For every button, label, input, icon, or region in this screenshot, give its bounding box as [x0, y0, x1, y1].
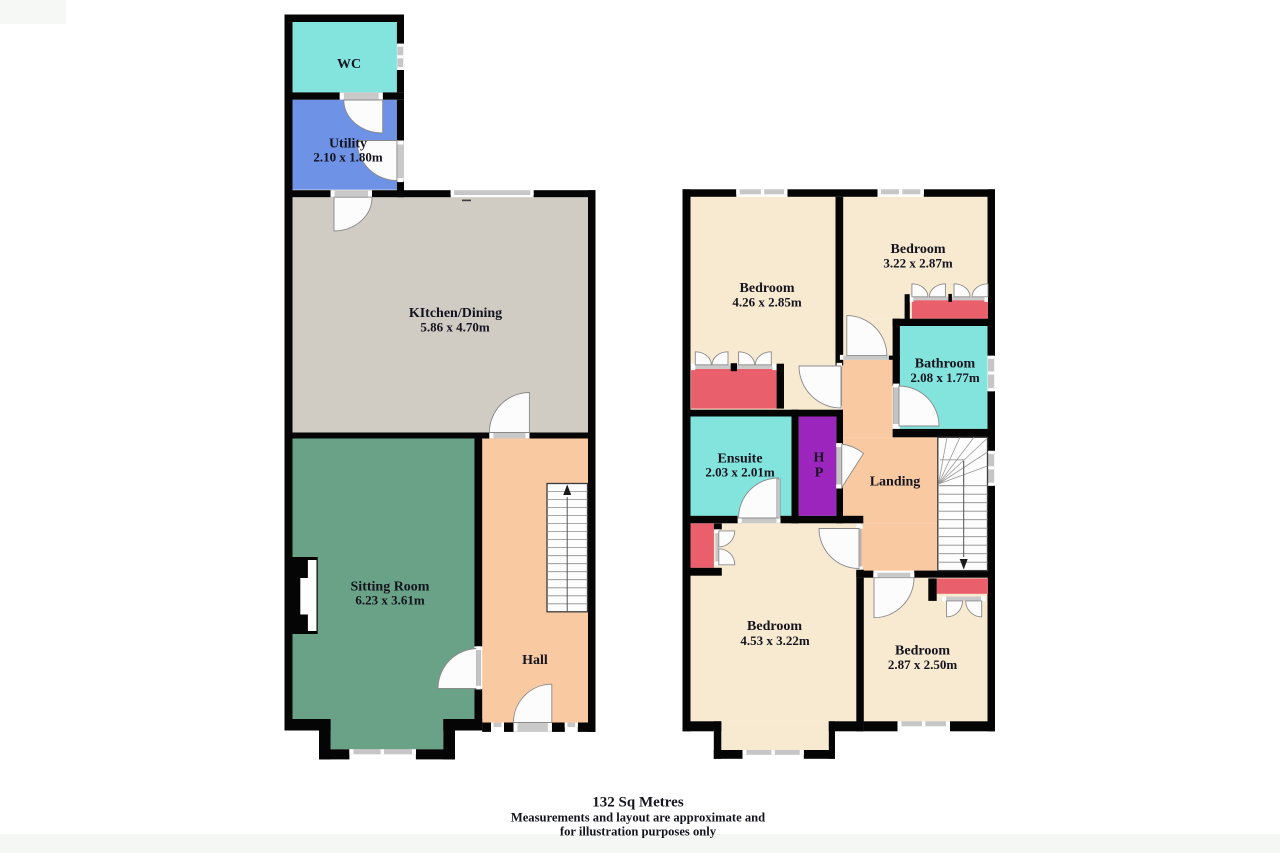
svg-text:2.87 x 2.50m: 2.87 x 2.50m [888, 657, 958, 672]
svg-text:P: P [815, 466, 824, 481]
svg-text:Landing: Landing [870, 475, 921, 490]
svg-text:4.53 x 3.22m: 4.53 x 3.22m [740, 633, 810, 648]
svg-text:6.23 x 3.61m: 6.23 x 3.61m [355, 593, 425, 608]
svg-text:2.10 x 1.80m: 2.10 x 1.80m [313, 149, 383, 164]
svg-text:Measurements and layout are ap: Measurements and layout are approximate … [511, 811, 765, 825]
svg-text:132 Sq Metres: 132 Sq Metres [592, 795, 684, 811]
svg-text:2.08 x 1.77m: 2.08 x 1.77m [910, 370, 980, 385]
svg-text:3.22 x 2.87m: 3.22 x 2.87m [883, 256, 953, 271]
svg-text:H: H [814, 451, 825, 466]
svg-text:WC: WC [337, 57, 361, 72]
svg-text:Hall: Hall [522, 653, 548, 668]
svg-text:Bedroom: Bedroom [747, 619, 802, 634]
svg-text:for illustration purposes only: for illustration purposes only [560, 825, 717, 839]
svg-text:2.03 x 2.01m: 2.03 x 2.01m [705, 465, 775, 480]
svg-text:4.26 x 2.85m: 4.26 x 2.85m [732, 295, 802, 310]
svg-text:5.86 x 4.70m: 5.86 x 4.70m [420, 320, 490, 335]
